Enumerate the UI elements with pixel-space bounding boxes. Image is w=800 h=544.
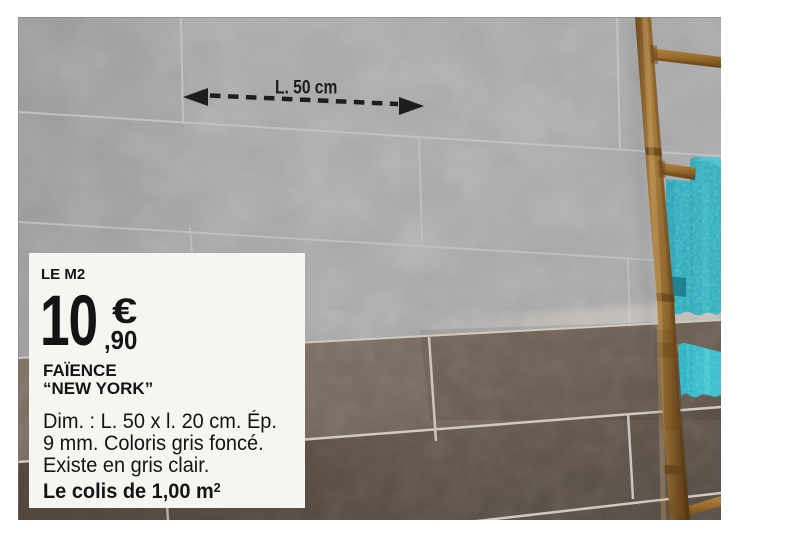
svg-text:L. 50 cm: L. 50 cm xyxy=(275,76,337,98)
